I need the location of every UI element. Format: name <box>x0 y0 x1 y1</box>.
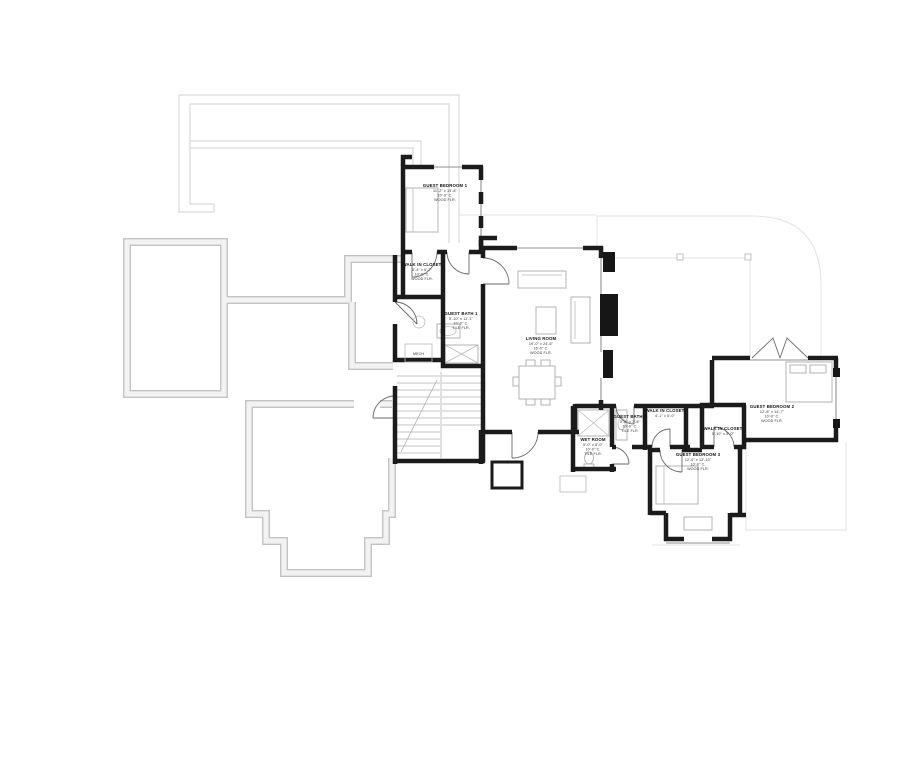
svg-text:WALK IN CLOSET: WALK IN CLOSET <box>646 408 685 413</box>
room-label-wet-room: WET ROOM 5'-0" x 8'-0" 10'-0" C. TILE FL… <box>580 437 606 456</box>
svg-text:10'-0" C.: 10'-0" C. <box>690 462 705 466</box>
svg-text:10'-0" C.: 10'-0" C. <box>622 424 637 428</box>
svg-text:5'-10" x 11'-1": 5'-10" x 11'-1" <box>449 317 473 321</box>
furniture <box>406 188 832 530</box>
svg-text:TILE FLR.: TILE FLR. <box>452 326 470 330</box>
room-label-guest-bedroom-2: GUEST BEDROOM 2 12'-8" x 14'-7" 10'-0" C… <box>750 404 795 423</box>
svg-text:6'-4" x 6'-7": 6'-4" x 6'-7" <box>412 268 432 272</box>
window-frame <box>603 252 615 272</box>
upper-floor-outline <box>179 95 597 243</box>
patio-post <box>745 254 751 260</box>
svg-text:16'-0" C.: 16'-0" C. <box>533 346 548 350</box>
fireplace <box>600 294 618 336</box>
dining-table <box>519 366 555 399</box>
svg-text:WOOD FLR.: WOOD FLR. <box>761 419 783 423</box>
svg-text:GUEST BATH 2: GUEST BATH 2 <box>614 414 647 419</box>
svg-text:TILE FLR.: TILE FLR. <box>621 429 639 433</box>
french-doors <box>752 338 808 358</box>
lower-terrace-outline <box>746 442 846 530</box>
svg-text:GUEST BEDROOM 2: GUEST BEDROOM 2 <box>750 404 795 409</box>
svg-text:WOOD FLR.: WOOD FLR. <box>687 467 709 471</box>
sofa <box>518 271 566 288</box>
svg-text:10'-0" C.: 10'-0" C. <box>437 193 452 197</box>
svg-text:GUEST BATH 1: GUEST BATH 1 <box>445 311 478 316</box>
mech-label: MECH <box>413 352 424 356</box>
coffee-table <box>536 307 556 334</box>
room-label-walk-in-closet-1: WALK IN CLOSET 6'-4" x 6'-7" 10'-0" C. W… <box>403 262 442 281</box>
svg-text:19'-0" x 24'-6": 19'-0" x 24'-6" <box>529 342 554 346</box>
svg-text:WET ROOM: WET ROOM <box>580 437 606 442</box>
bump-out <box>492 462 522 488</box>
chaise <box>571 297 590 343</box>
svg-text:5'-5" x 7'-8": 5'-5" x 7'-8" <box>620 420 640 424</box>
window-bench <box>684 517 712 530</box>
svg-text:GUEST BEDROOM 3: GUEST BEDROOM 3 <box>676 452 721 457</box>
svg-text:5'-0" x 8'-0": 5'-0" x 8'-0" <box>583 443 603 447</box>
svg-text:12'-6" x 13'-10": 12'-6" x 13'-10" <box>685 458 712 462</box>
room-label-walk-in-closet-3: WALK IN CLOSET 5'-10" x 5'-0" <box>704 426 743 436</box>
svg-text:10'-0" C.: 10'-0" C. <box>764 414 779 418</box>
window-well <box>560 476 586 492</box>
staircase <box>397 372 481 458</box>
bed-guest-1 <box>406 188 438 232</box>
window-frame <box>603 350 613 378</box>
svg-text:5'-10" x 5'-0": 5'-10" x 5'-0" <box>712 432 735 436</box>
room-label-walk-in-closet-2: WALK IN CLOSET 4'-1" x 5'-0" <box>646 408 685 418</box>
svg-text:WOOD FLR.: WOOD FLR. <box>530 351 552 355</box>
svg-text:4'-1" x 5'-0": 4'-1" x 5'-0" <box>655 414 675 418</box>
svg-text:10'-0" C.: 10'-0" C. <box>453 321 468 325</box>
svg-text:WALK IN CLOSET: WALK IN CLOSET <box>704 426 743 431</box>
foundation-walls <box>127 242 586 573</box>
svg-text:11'-2" x 13'-8": 11'-2" x 13'-8" <box>433 189 457 193</box>
svg-text:WOOD FLR.: WOOD FLR. <box>434 198 456 202</box>
svg-text:12'-8" x 14'-7": 12'-8" x 14'-7" <box>760 410 785 414</box>
svg-text:10'-0" C.: 10'-0" C. <box>414 272 429 276</box>
svg-text:WOOD FLR.: WOOD FLR. <box>411 277 433 281</box>
svg-text:10'-0" C.: 10'-0" C. <box>585 447 600 451</box>
floor-plan-drawing: GUEST BEDROOM 1 11'-2" x 13'-8" 10'-0" C… <box>0 0 921 768</box>
svg-text:WALK IN CLOSET: WALK IN CLOSET <box>403 262 442 267</box>
svg-text:LIVING ROOM: LIVING ROOM <box>526 336 557 341</box>
svg-text:TILE FLR.: TILE FLR. <box>584 452 602 456</box>
room-label-living-room: LIVING ROOM 19'-0" x 24'-6" 16'-0" C. WO… <box>526 336 557 355</box>
floor-plan-page: GUEST BEDROOM 1 11'-2" x 13'-8" 10'-0" C… <box>0 0 921 768</box>
svg-text:GUEST BEDROOM 1: GUEST BEDROOM 1 <box>423 183 468 188</box>
patio-post <box>677 254 683 260</box>
